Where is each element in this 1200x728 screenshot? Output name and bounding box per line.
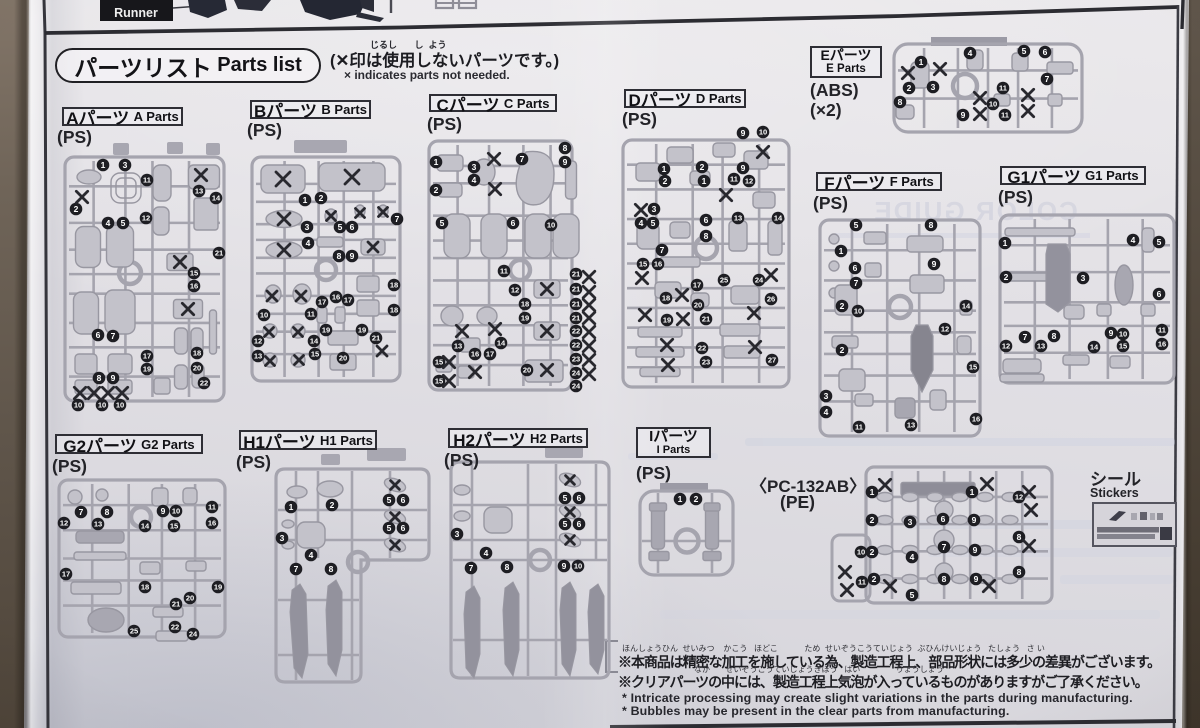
svg-text:19: 19 xyxy=(214,583,222,592)
svg-text:1: 1 xyxy=(919,57,924,67)
svg-text:12: 12 xyxy=(941,325,949,334)
svg-text:8: 8 xyxy=(337,251,342,261)
svg-text:2: 2 xyxy=(74,204,79,214)
svg-text:21: 21 xyxy=(572,314,580,323)
svg-text:7: 7 xyxy=(854,278,859,288)
svg-text:4: 4 xyxy=(910,552,915,562)
svg-text:1: 1 xyxy=(1003,238,1008,248)
svg-text:2: 2 xyxy=(840,301,845,311)
svg-text:3: 3 xyxy=(123,160,128,170)
svg-text:21: 21 xyxy=(172,600,180,609)
svg-text:3: 3 xyxy=(472,162,477,172)
svg-text:8: 8 xyxy=(898,97,903,107)
svg-text:22: 22 xyxy=(572,327,580,336)
svg-text:22: 22 xyxy=(698,344,706,353)
svg-text:11: 11 xyxy=(999,84,1007,93)
svg-text:8: 8 xyxy=(1017,567,1022,577)
svg-text:7: 7 xyxy=(294,564,299,574)
svg-text:1: 1 xyxy=(970,487,975,497)
svg-text:5: 5 xyxy=(1022,46,1027,56)
svg-text:10: 10 xyxy=(574,562,582,571)
svg-text:11: 11 xyxy=(855,423,863,432)
svg-text:9: 9 xyxy=(741,128,746,138)
svg-text:10: 10 xyxy=(759,128,767,137)
svg-text:4: 4 xyxy=(106,218,111,228)
svg-text:12: 12 xyxy=(254,337,262,346)
svg-text:10: 10 xyxy=(854,307,862,316)
svg-text:14: 14 xyxy=(212,194,221,203)
svg-text:18: 18 xyxy=(390,281,398,290)
svg-text:2: 2 xyxy=(700,162,705,172)
svg-text:24: 24 xyxy=(189,630,198,639)
svg-text:6: 6 xyxy=(577,519,582,529)
svg-text:3: 3 xyxy=(652,204,657,214)
svg-text:11: 11 xyxy=(208,503,216,512)
svg-text:4: 4 xyxy=(309,550,314,560)
svg-text:2: 2 xyxy=(663,176,668,186)
svg-text:1: 1 xyxy=(303,195,308,205)
svg-text:16: 16 xyxy=(332,293,340,302)
svg-text:7: 7 xyxy=(1045,74,1050,84)
svg-text:5: 5 xyxy=(387,495,392,505)
svg-text:18: 18 xyxy=(193,349,201,358)
svg-text:13: 13 xyxy=(734,214,742,223)
svg-text:3: 3 xyxy=(455,529,460,539)
svg-text:14: 14 xyxy=(141,522,150,531)
svg-text:13: 13 xyxy=(195,187,203,196)
svg-text:12: 12 xyxy=(142,214,150,223)
svg-text:1: 1 xyxy=(101,160,106,170)
svg-text:6: 6 xyxy=(401,523,406,533)
svg-text:1: 1 xyxy=(434,157,439,167)
svg-text:8: 8 xyxy=(505,562,510,572)
svg-text:21: 21 xyxy=(702,315,710,324)
svg-text:8: 8 xyxy=(563,143,568,153)
svg-text:7: 7 xyxy=(79,507,84,517)
svg-text:7: 7 xyxy=(469,563,474,573)
svg-text:19: 19 xyxy=(143,365,151,374)
svg-text:8: 8 xyxy=(929,220,934,230)
svg-text:6: 6 xyxy=(577,493,582,503)
svg-text:22: 22 xyxy=(572,341,580,350)
svg-text:14: 14 xyxy=(497,339,506,348)
svg-text:20: 20 xyxy=(523,366,531,375)
svg-text:12: 12 xyxy=(1015,493,1023,502)
svg-text:19: 19 xyxy=(521,314,529,323)
svg-text:5: 5 xyxy=(563,519,568,529)
svg-text:2: 2 xyxy=(694,494,699,504)
svg-text:9: 9 xyxy=(973,545,978,555)
svg-text:9: 9 xyxy=(961,110,966,120)
svg-text:14: 14 xyxy=(310,337,319,346)
svg-text:10: 10 xyxy=(74,401,82,410)
svg-text:22: 22 xyxy=(171,623,179,632)
svg-text:17: 17 xyxy=(344,296,352,305)
svg-text:1: 1 xyxy=(870,487,875,497)
svg-text:12: 12 xyxy=(60,519,68,528)
svg-text:23: 23 xyxy=(702,358,710,367)
svg-text:6: 6 xyxy=(350,222,355,232)
svg-text:15: 15 xyxy=(435,358,443,367)
svg-text:2: 2 xyxy=(907,83,912,93)
svg-text:5: 5 xyxy=(651,218,656,228)
svg-text:3: 3 xyxy=(280,533,285,543)
svg-text:9: 9 xyxy=(161,506,166,516)
svg-text:4: 4 xyxy=(968,48,973,58)
svg-text:1: 1 xyxy=(289,502,294,512)
svg-text:9: 9 xyxy=(932,259,937,269)
svg-text:8: 8 xyxy=(1052,331,1057,341)
svg-text:1: 1 xyxy=(839,246,844,256)
svg-text:14: 14 xyxy=(962,302,971,311)
svg-text:21: 21 xyxy=(572,270,580,279)
svg-text:4: 4 xyxy=(306,238,311,248)
svg-text:21: 21 xyxy=(372,334,380,343)
svg-text:17: 17 xyxy=(62,570,70,579)
svg-text:8: 8 xyxy=(329,564,334,574)
svg-text:3: 3 xyxy=(908,517,913,527)
svg-text:22: 22 xyxy=(200,379,208,388)
svg-text:6: 6 xyxy=(1043,47,1048,57)
svg-text:2: 2 xyxy=(434,185,439,195)
svg-text:15: 15 xyxy=(969,363,977,372)
svg-text:3: 3 xyxy=(931,82,936,92)
svg-text:20: 20 xyxy=(339,354,347,363)
svg-text:17: 17 xyxy=(143,352,151,361)
svg-text:19: 19 xyxy=(358,326,366,335)
svg-text:16: 16 xyxy=(972,415,980,424)
svg-text:9: 9 xyxy=(741,163,746,173)
svg-text:13: 13 xyxy=(907,421,915,430)
svg-text:8: 8 xyxy=(105,507,110,517)
svg-text:7: 7 xyxy=(1023,332,1028,342)
svg-text:7: 7 xyxy=(395,214,400,224)
svg-text:25: 25 xyxy=(720,276,728,285)
svg-text:26: 26 xyxy=(767,295,775,304)
svg-text:15: 15 xyxy=(190,269,198,278)
svg-text:6: 6 xyxy=(941,514,946,524)
svg-text:9: 9 xyxy=(350,251,355,261)
svg-text:10: 10 xyxy=(116,401,124,410)
svg-text:1: 1 xyxy=(662,164,667,174)
svg-text:2: 2 xyxy=(840,345,845,355)
svg-text:15: 15 xyxy=(311,350,319,359)
svg-text:18: 18 xyxy=(141,583,149,592)
svg-text:20: 20 xyxy=(694,301,702,310)
svg-text:10: 10 xyxy=(989,100,997,109)
svg-text:6: 6 xyxy=(704,215,709,225)
svg-text:2: 2 xyxy=(870,547,875,557)
svg-text:17: 17 xyxy=(318,298,326,307)
svg-text:11: 11 xyxy=(307,310,315,319)
svg-text:24: 24 xyxy=(755,276,764,285)
svg-text:25: 25 xyxy=(130,627,138,636)
svg-text:4: 4 xyxy=(484,548,489,558)
svg-text:12: 12 xyxy=(1002,342,1010,351)
svg-text:8: 8 xyxy=(97,373,102,383)
svg-text:9: 9 xyxy=(972,515,977,525)
svg-text:10: 10 xyxy=(98,401,106,410)
svg-text:11: 11 xyxy=(730,175,738,184)
svg-text:15: 15 xyxy=(435,377,443,386)
svg-text:3: 3 xyxy=(1081,273,1086,283)
svg-text:5: 5 xyxy=(563,493,568,503)
svg-text:23: 23 xyxy=(572,355,580,364)
svg-text:16: 16 xyxy=(1158,340,1166,349)
svg-text:18: 18 xyxy=(390,306,398,315)
svg-text:9: 9 xyxy=(111,373,116,383)
svg-text:13: 13 xyxy=(254,352,262,361)
svg-text:24: 24 xyxy=(572,369,581,378)
svg-text:21: 21 xyxy=(215,249,223,258)
svg-text:4: 4 xyxy=(472,175,477,185)
svg-text:6: 6 xyxy=(401,495,406,505)
svg-text:7: 7 xyxy=(520,154,525,164)
svg-text:11: 11 xyxy=(1001,111,1009,120)
svg-text:7: 7 xyxy=(111,331,116,341)
svg-text:2: 2 xyxy=(330,500,335,510)
svg-text:12: 12 xyxy=(511,286,519,295)
svg-text:3: 3 xyxy=(824,391,829,401)
svg-text:10: 10 xyxy=(547,221,555,230)
svg-text:2: 2 xyxy=(870,515,875,525)
svg-text:14: 14 xyxy=(774,214,783,223)
svg-text:9: 9 xyxy=(974,574,979,584)
svg-text:9: 9 xyxy=(1109,328,1114,338)
svg-text:17: 17 xyxy=(486,350,494,359)
svg-text:15: 15 xyxy=(170,522,178,531)
svg-text:6: 6 xyxy=(96,330,101,340)
svg-text:4: 4 xyxy=(1131,235,1136,245)
svg-text:4: 4 xyxy=(639,218,644,228)
svg-text:6: 6 xyxy=(1157,289,1162,299)
svg-text:5: 5 xyxy=(338,222,343,232)
svg-text:18: 18 xyxy=(521,300,529,309)
svg-text:8: 8 xyxy=(942,574,947,584)
svg-text:13: 13 xyxy=(94,520,102,529)
svg-text:2: 2 xyxy=(872,574,877,584)
svg-text:1: 1 xyxy=(702,176,707,186)
svg-text:15: 15 xyxy=(1119,342,1127,351)
svg-text:8: 8 xyxy=(1017,532,1022,542)
svg-text:21: 21 xyxy=(572,300,580,309)
svg-text:11: 11 xyxy=(1158,326,1166,335)
svg-text:5: 5 xyxy=(387,523,392,533)
svg-text:17: 17 xyxy=(693,281,701,290)
svg-text:13: 13 xyxy=(1037,342,1045,351)
svg-text:6: 6 xyxy=(511,218,516,228)
svg-text:16: 16 xyxy=(190,282,198,291)
svg-text:1: 1 xyxy=(678,494,683,504)
svg-text:7: 7 xyxy=(660,245,665,255)
svg-text:16: 16 xyxy=(471,350,479,359)
svg-text:24: 24 xyxy=(572,382,581,391)
svg-text:20: 20 xyxy=(186,594,194,603)
svg-text:11: 11 xyxy=(858,578,866,587)
svg-text:27: 27 xyxy=(768,356,776,365)
svg-text:4: 4 xyxy=(824,407,829,417)
svg-text:9: 9 xyxy=(563,157,568,167)
svg-text:12: 12 xyxy=(745,177,753,186)
svg-text:10: 10 xyxy=(857,548,865,557)
svg-text:19: 19 xyxy=(322,326,330,335)
svg-text:16: 16 xyxy=(208,519,216,528)
svg-text:11: 11 xyxy=(500,267,508,276)
svg-text:18: 18 xyxy=(662,294,670,303)
svg-text:15: 15 xyxy=(639,260,647,269)
svg-text:3: 3 xyxy=(305,222,310,232)
svg-text:10: 10 xyxy=(1119,330,1127,339)
svg-text:5: 5 xyxy=(910,590,915,600)
svg-text:20: 20 xyxy=(193,364,201,373)
svg-text:19: 19 xyxy=(663,316,671,325)
svg-text:2: 2 xyxy=(319,193,324,203)
svg-text:21: 21 xyxy=(572,285,580,294)
svg-text:7: 7 xyxy=(942,542,947,552)
svg-text:5: 5 xyxy=(854,220,859,230)
svg-text:11: 11 xyxy=(143,176,151,185)
svg-text:10: 10 xyxy=(260,311,268,320)
svg-text:14: 14 xyxy=(1090,343,1099,352)
svg-text:5: 5 xyxy=(121,218,126,228)
svg-text:13: 13 xyxy=(454,342,462,351)
svg-text:16: 16 xyxy=(654,260,662,269)
svg-text:2: 2 xyxy=(1004,272,1009,282)
svg-text:9: 9 xyxy=(562,561,567,571)
svg-text:5: 5 xyxy=(440,218,445,228)
svg-text:5: 5 xyxy=(1157,237,1162,247)
svg-text:10: 10 xyxy=(172,507,180,516)
svg-text:Runner: Runner xyxy=(114,6,158,20)
svg-text:6: 6 xyxy=(853,263,858,273)
svg-text:8: 8 xyxy=(704,231,709,241)
